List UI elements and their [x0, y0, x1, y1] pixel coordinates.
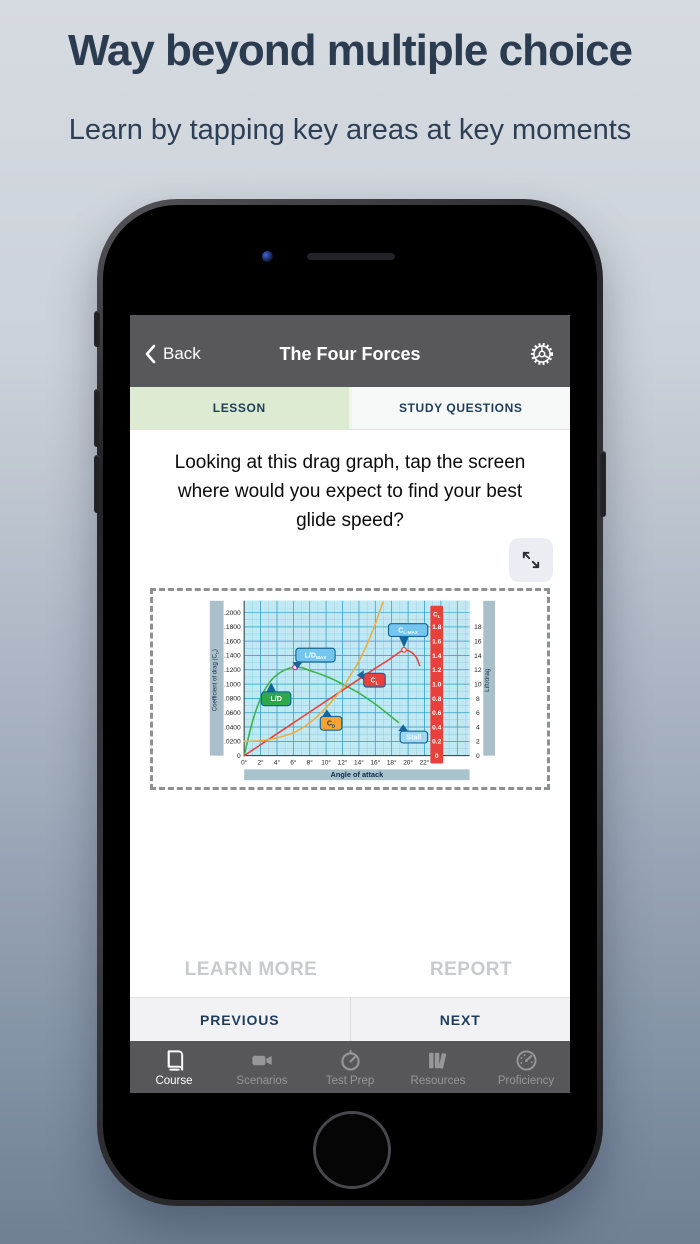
- svg-text:22°: 22°: [420, 758, 430, 766]
- svg-text:6: 6: [476, 710, 480, 717]
- tab-study-questions[interactable]: STUDY QUESTIONS: [352, 387, 571, 429]
- svg-text:18°: 18°: [387, 758, 397, 766]
- page-title: Way beyond multiple choice: [0, 26, 700, 76]
- volume-down-button: [94, 455, 100, 513]
- svg-text:20°: 20°: [403, 758, 413, 766]
- svg-text:.1800: .1800: [224, 624, 241, 631]
- svg-text:1.4: 1.4: [432, 653, 442, 660]
- stopwatch-icon: [338, 1048, 363, 1073]
- svg-text:1.8: 1.8: [432, 624, 442, 631]
- back-button[interactable]: Back: [144, 344, 240, 364]
- svg-text:Stall: Stall: [406, 734, 421, 741]
- svg-text:0: 0: [435, 753, 439, 760]
- svg-text:0.6: 0.6: [432, 710, 442, 717]
- svg-text:4: 4: [476, 724, 480, 731]
- svg-text:0.4: 0.4: [432, 724, 442, 731]
- drag-graph[interactable]: Coefficient of drag (CD)Lift/drag.2000.1…: [154, 591, 546, 787]
- svg-text:.0200: .0200: [224, 739, 241, 746]
- next-button[interactable]: NEXT: [351, 998, 571, 1042]
- svg-text:4°: 4°: [274, 758, 281, 766]
- svg-text:Coefficient of drag (CD): Coefficient of drag (CD): [213, 649, 220, 711]
- page-heading: The Four Forces: [240, 344, 460, 365]
- tabbar-item-proficiency[interactable]: Proficiency: [482, 1041, 570, 1093]
- svg-text:8°: 8°: [307, 758, 314, 766]
- svg-text:6°: 6°: [290, 758, 297, 766]
- app-header: Back The Four Forces: [130, 315, 570, 387]
- svg-text:.0400: .0400: [224, 724, 241, 731]
- learn-more-button[interactable]: LEARN MORE: [130, 959, 372, 981]
- svg-text:.1200: .1200: [224, 667, 241, 674]
- svg-text:Lift/drag: Lift/drag: [484, 668, 491, 692]
- svg-text:1.2: 1.2: [432, 667, 442, 674]
- tabbar-item-test-prep[interactable]: Test Prep: [306, 1041, 394, 1093]
- svg-text:14°: 14°: [354, 758, 364, 766]
- tab-lesson[interactable]: LESSON: [130, 387, 352, 429]
- svg-text:.1400: .1400: [224, 653, 241, 660]
- video-camera-icon: [250, 1048, 275, 1073]
- svg-text:.1600: .1600: [224, 638, 241, 645]
- back-chevron-icon: [144, 344, 156, 364]
- book-icon: [162, 1048, 187, 1073]
- marketing-screenshot: Way beyond multiple choice Learn by tapp…: [0, 0, 700, 1244]
- svg-text:14: 14: [474, 653, 482, 660]
- tabbar-label: Course: [155, 1075, 192, 1087]
- svg-text:2°: 2°: [257, 758, 264, 766]
- gauge-icon: [514, 1048, 539, 1073]
- tabbar-label: Resources: [411, 1075, 466, 1087]
- library-icon: [426, 1048, 451, 1073]
- svg-text:L/D: L/D: [270, 696, 281, 703]
- svg-text:0.8: 0.8: [432, 696, 442, 703]
- home-button: [313, 1111, 391, 1189]
- svg-text:16°: 16°: [370, 758, 380, 766]
- svg-text:Angle of attack: Angle of attack: [331, 770, 385, 779]
- svg-text:.0800: .0800: [224, 696, 241, 703]
- gear-icon: [528, 340, 556, 368]
- previous-button[interactable]: PREVIOUS: [130, 998, 351, 1042]
- question-text: Looking at this drag graph, tap the scre…: [130, 430, 570, 535]
- svg-text:0: 0: [476, 753, 480, 760]
- svg-text:1.6: 1.6: [432, 639, 442, 646]
- tabbar-item-course[interactable]: Course: [130, 1041, 218, 1093]
- svg-text:8: 8: [476, 696, 480, 703]
- back-label: Back: [163, 344, 201, 364]
- bottom-tab-bar: Course Scenarios: [130, 1041, 570, 1093]
- tabbar-label: Proficiency: [498, 1075, 554, 1087]
- svg-text:18: 18: [474, 624, 482, 631]
- svg-text:.1000: .1000: [224, 681, 241, 688]
- svg-text:1.0: 1.0: [432, 681, 442, 688]
- svg-text:.2000: .2000: [224, 610, 241, 617]
- svg-text:10: 10: [474, 681, 482, 688]
- pagination-row: PREVIOUS NEXT: [130, 997, 570, 1042]
- page-subtitle: Learn by tapping key areas at key moment…: [0, 114, 700, 147]
- power-button: [600, 451, 606, 517]
- drag-graph-figure[interactable]: Coefficient of drag (CD)Lift/drag.2000.1…: [150, 588, 550, 790]
- svg-text:0°: 0°: [241, 758, 248, 766]
- svg-text:2: 2: [476, 739, 480, 746]
- front-camera: [262, 251, 273, 262]
- svg-text:12: 12: [474, 667, 482, 674]
- phone-frame: Back The Four Forces: [97, 199, 603, 1206]
- svg-text:0.2: 0.2: [432, 739, 442, 746]
- tabbar-label: Test Prep: [326, 1075, 375, 1087]
- tabbar-item-resources[interactable]: Resources: [394, 1041, 482, 1093]
- expand-button[interactable]: [509, 538, 553, 582]
- mute-switch: [94, 311, 100, 347]
- svg-text:10°: 10°: [321, 758, 331, 766]
- lesson-tab-bar: LESSON STUDY QUESTIONS: [130, 387, 570, 430]
- expand-icon: [519, 548, 543, 572]
- tabbar-item-scenarios[interactable]: Scenarios: [218, 1041, 306, 1093]
- volume-up-button: [94, 389, 100, 447]
- svg-text:16: 16: [474, 639, 482, 646]
- settings-button[interactable]: [460, 340, 556, 368]
- tabbar-label: Scenarios: [236, 1075, 287, 1087]
- lesson-actions: LEARN MORE REPORT: [130, 945, 570, 995]
- svg-text:.0600: .0600: [224, 710, 241, 717]
- report-button[interactable]: REPORT: [372, 959, 570, 981]
- app-screen: Back The Four Forces: [130, 315, 570, 1093]
- earpiece-speaker: [307, 253, 395, 260]
- svg-text:12°: 12°: [338, 758, 348, 766]
